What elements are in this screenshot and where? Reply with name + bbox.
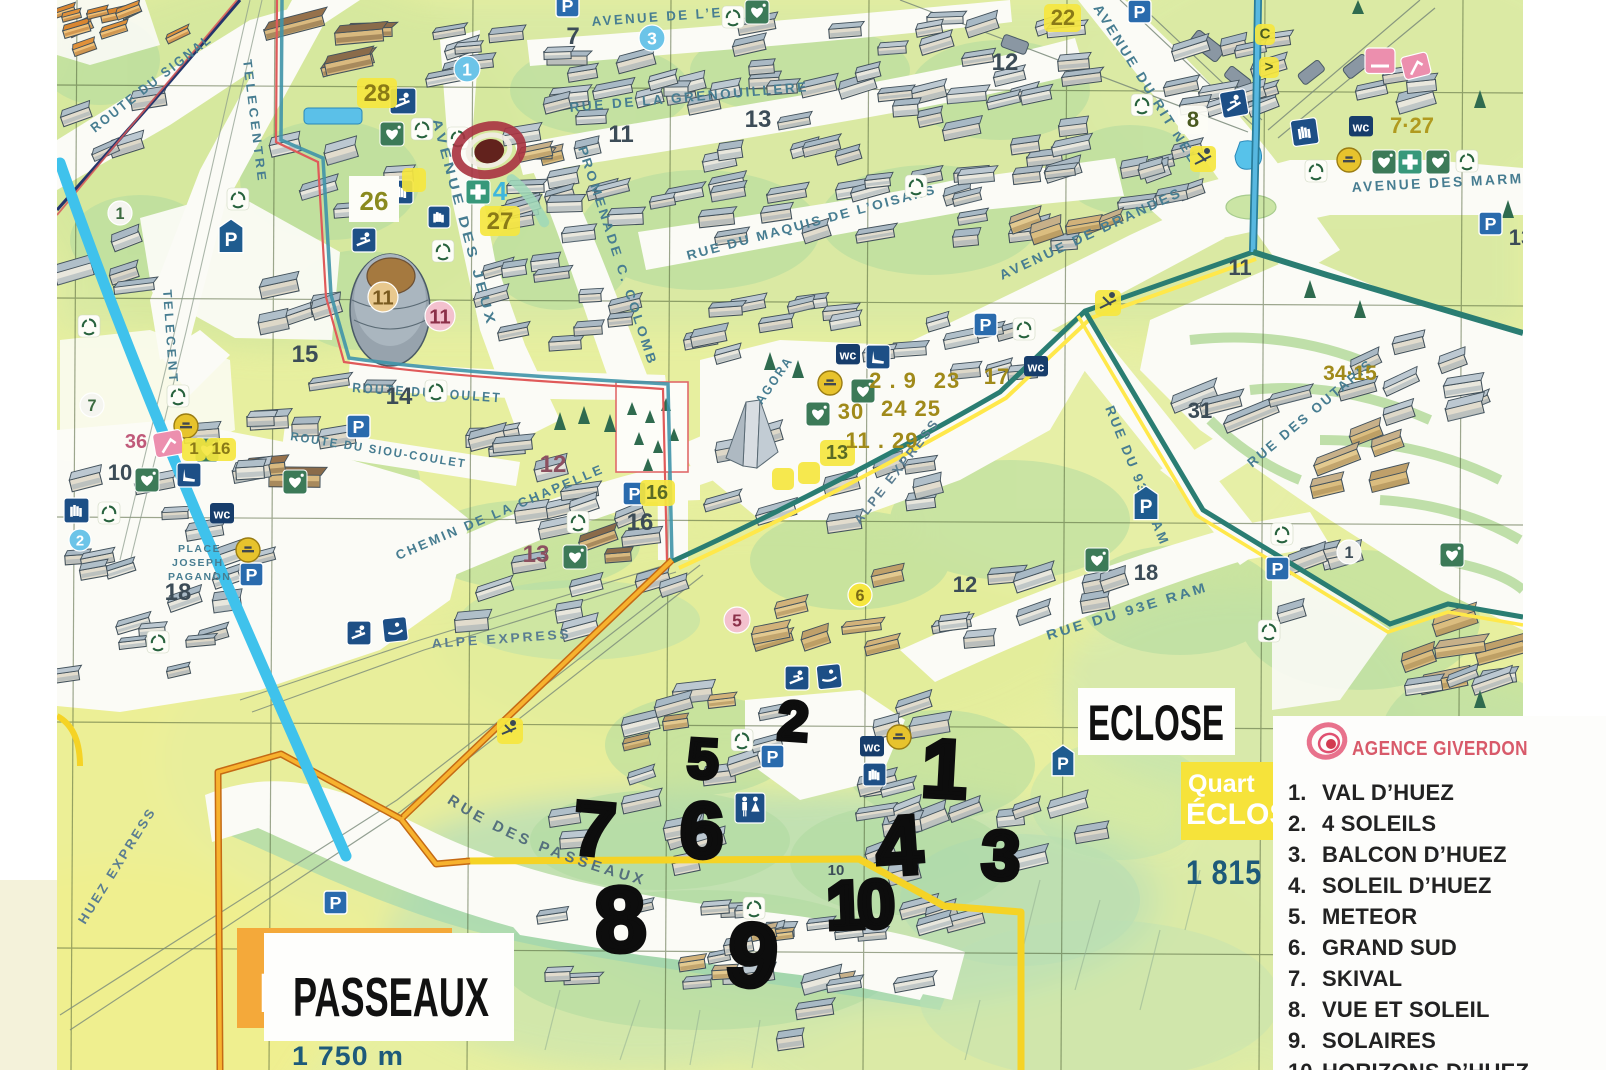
svg-text:wc: wc: [213, 508, 231, 522]
svg-text:34·15: 34·15: [1323, 362, 1377, 385]
svg-text:12: 12: [953, 572, 977, 597]
svg-text:1: 1: [462, 59, 472, 79]
svg-text:wc: wc: [1352, 121, 1370, 135]
svg-text:26: 26: [360, 186, 389, 216]
svg-text:15: 15: [292, 341, 319, 368]
svg-text:8: 8: [1187, 107, 1199, 132]
svg-text:1 815: 1 815: [1186, 854, 1262, 892]
svg-text:5: 5: [732, 610, 742, 630]
svg-text:28: 28: [364, 80, 391, 107]
svg-text:3: 3: [980, 816, 1021, 894]
svg-text:1: 1: [115, 205, 124, 223]
svg-text:11: 11: [429, 306, 450, 328]
svg-text:7·27: 7·27: [1390, 113, 1434, 138]
svg-text:wc: wc: [1027, 361, 1045, 375]
svg-text:P: P: [225, 230, 238, 251]
svg-text:4 SOLEILS: 4 SOLEILS: [1322, 811, 1436, 836]
svg-text:27: 27: [487, 208, 514, 235]
svg-text:METEOR: METEOR: [1322, 904, 1417, 929]
svg-text:23: 23: [934, 368, 960, 393]
svg-text:11 . 29: 11 . 29: [845, 428, 918, 453]
svg-text:ECLOSE: ECLOSE: [1088, 695, 1224, 751]
svg-text:PLACE: PLACE: [178, 543, 221, 555]
svg-text:P: P: [629, 484, 641, 504]
svg-text:P: P: [1485, 214, 1497, 234]
svg-text:wc: wc: [863, 741, 881, 755]
svg-text:18: 18: [165, 579, 192, 606]
svg-text:2: 2: [76, 533, 84, 549]
svg-text:16: 16: [627, 509, 654, 536]
svg-text:36: 36: [125, 431, 147, 453]
svg-text:31: 31: [1188, 398, 1212, 423]
svg-text:11: 11: [1228, 255, 1251, 280]
svg-text:11: 11: [372, 287, 393, 309]
svg-text:10.: 10.: [1288, 1059, 1319, 1070]
svg-text:P: P: [330, 893, 342, 913]
svg-text:P: P: [562, 0, 574, 16]
svg-text:7: 7: [569, 785, 619, 873]
svg-text:P: P: [980, 315, 992, 335]
svg-text:2: 2: [776, 689, 811, 753]
svg-text:BALCON D’HUEZ: BALCON D’HUEZ: [1322, 842, 1507, 867]
svg-text:7: 7: [566, 23, 579, 50]
svg-text:P: P: [1272, 559, 1284, 579]
svg-text:7: 7: [87, 397, 96, 415]
svg-text:7.: 7.: [1288, 966, 1306, 991]
svg-text:4.: 4.: [1288, 873, 1306, 898]
svg-text:VAL D’HUEZ: VAL D’HUEZ: [1322, 780, 1454, 805]
svg-text:6: 6: [855, 587, 864, 605]
svg-text:10: 10: [825, 866, 894, 944]
svg-text:13: 13: [745, 106, 772, 133]
svg-text:4: 4: [493, 176, 508, 206]
svg-text:JOSEPH: JOSEPH: [172, 557, 224, 569]
svg-text:SKIVAL: SKIVAL: [1322, 966, 1402, 991]
svg-text:16: 16: [646, 482, 668, 504]
svg-text:30: 30: [838, 399, 864, 424]
svg-text:17: 17: [984, 364, 1010, 389]
svg-text:P: P: [1134, 2, 1146, 22]
svg-text:5.: 5.: [1288, 904, 1306, 929]
svg-text:1 750 m: 1 750 m: [292, 1041, 404, 1070]
svg-text:1: 1: [1344, 544, 1353, 562]
svg-text:13: 13: [523, 541, 550, 568]
svg-text:18: 18: [1134, 560, 1158, 585]
svg-text:P: P: [353, 417, 365, 437]
svg-text:12: 12: [992, 49, 1019, 76]
svg-text:8.: 8.: [1288, 997, 1306, 1022]
svg-text:˃: ˃: [1265, 58, 1274, 75]
svg-text:2.: 2.: [1288, 811, 1306, 836]
svg-text:P: P: [246, 565, 258, 585]
svg-text:C: C: [1260, 25, 1271, 42]
svg-text:3: 3: [647, 28, 657, 48]
svg-text:5: 5: [686, 726, 720, 791]
svg-text:11: 11: [608, 121, 633, 148]
svg-text:SOLAIRES: SOLAIRES: [1322, 1028, 1436, 1053]
svg-text:Quart: Quart: [1188, 770, 1255, 798]
svg-text:wc: wc: [839, 349, 857, 363]
svg-text:22: 22: [1051, 5, 1075, 30]
svg-text:12: 12: [540, 451, 567, 478]
svg-text:9.: 9.: [1288, 1028, 1306, 1053]
svg-text:HORIZONS D’HUEZ: HORIZONS D’HUEZ: [1322, 1059, 1529, 1070]
svg-text:8: 8: [592, 868, 648, 973]
svg-text:14: 14: [386, 383, 413, 410]
svg-text:10: 10: [108, 460, 132, 485]
svg-text:16: 16: [212, 439, 231, 458]
svg-text:2 . 9: 2 . 9: [869, 368, 917, 393]
svg-text:AGENCE GIVERDON: AGENCE GIVERDON: [1352, 738, 1528, 760]
svg-text:VUE ET SOLEIL: VUE ET SOLEIL: [1322, 997, 1490, 1022]
svg-text:1: 1: [189, 439, 198, 458]
svg-text:GRAND SUD: GRAND SUD: [1322, 935, 1457, 960]
svg-text:P: P: [1057, 754, 1069, 774]
svg-text:6.: 6.: [1288, 935, 1306, 960]
svg-text:1.: 1.: [1288, 780, 1306, 805]
svg-text:1: 1: [919, 723, 969, 816]
svg-text:3.: 3.: [1288, 842, 1306, 867]
svg-text:SOLEIL D’HUEZ: SOLEIL D’HUEZ: [1322, 873, 1492, 898]
svg-text:PASSEAUX: PASSEAUX: [293, 966, 489, 1028]
svg-text:P: P: [1140, 497, 1153, 518]
svg-text:6: 6: [679, 785, 725, 874]
svg-text:24 25: 24 25: [881, 396, 941, 421]
